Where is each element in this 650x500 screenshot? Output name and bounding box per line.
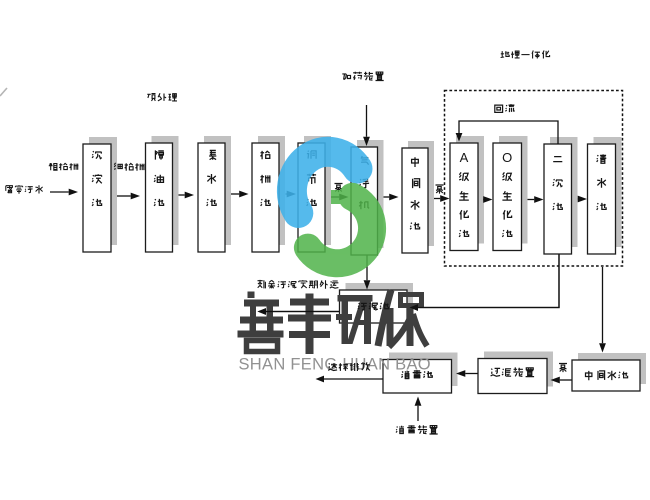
svg-text:O: O	[502, 150, 512, 165]
svg-text:A: A	[460, 150, 469, 165]
